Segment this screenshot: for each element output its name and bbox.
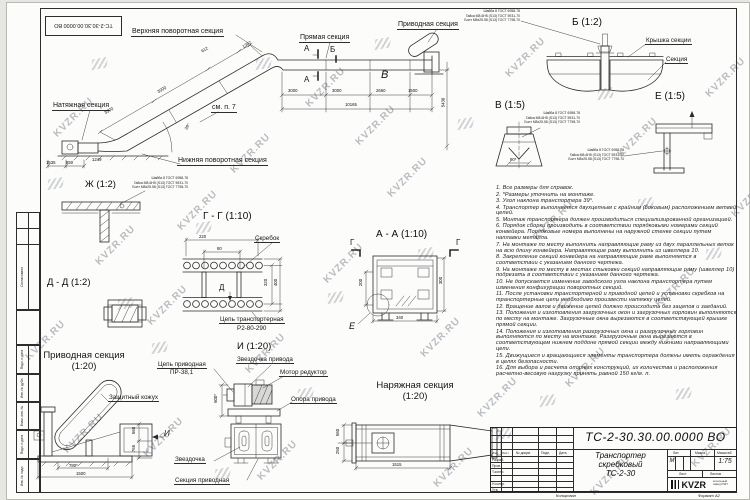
frame-label-agreed: Согласовано: [17, 244, 28, 310]
kvzr-logo-icon: [671, 480, 679, 489]
fastener-callout-b: Шайба 8 ГОСТ 6958-78 Гайка М8-6Н5 (S13) …: [446, 9, 520, 23]
note-item: 16. Для выбора и расчета опорных констру…: [496, 366, 738, 378]
label-sprocket: Звездочка: [174, 456, 206, 464]
dim-v-90: 90*: [510, 157, 516, 162]
tb-scale-value: 1:75: [714, 458, 736, 465]
frame-strip-divider: [28, 345, 29, 374]
dim-gg-80: 80: [217, 246, 222, 251]
view-v-linework: [496, 122, 542, 170]
tb-row-tkontr: Т.контр.: [492, 470, 504, 474]
dim-aa-340: 340: [396, 315, 403, 320]
label-tension-section: Натяжная секция: [52, 102, 110, 111]
tb-col-data: Дата: [559, 451, 567, 455]
fastener-line: Болт М8х25.58 (S13) ГОСТ 7798-70: [514, 120, 580, 125]
dim-total-10165: 10165: [345, 102, 357, 107]
dim-top-3000-2: 3000: [332, 88, 342, 93]
dim-tension-250: 250: [335, 447, 340, 454]
tb-line: [491, 435, 573, 436]
dim-aa-300: 300: [438, 277, 443, 284]
note-item: 14. Положения и изготовления разгрузочны…: [496, 330, 738, 354]
view-zh-title: Ж (1:2): [85, 179, 116, 190]
corner-stamp-text: ТС-2-30.30.00.0000 ВО: [46, 17, 121, 35]
frame-strip-divider: [28, 430, 29, 459]
label-motor-reducer: Мотор редуктор: [279, 369, 328, 377]
frame-label-podp-data-1: Подп. и дата: [17, 345, 28, 374]
tb-line: [491, 462, 573, 463]
dim-drive-780: 780*: [69, 463, 78, 468]
tb-mass-header: Масса: [695, 451, 705, 455]
view-gg-title: Г - Г (1:10): [203, 211, 252, 222]
fastener-line: Болт М8х25.58 (S13) ГОСТ 7798-70: [446, 18, 520, 23]
view-aa-linework: [352, 250, 458, 324]
view-dd-linework: [104, 300, 146, 327]
view-aa-title: А - А (1:10): [376, 229, 427, 240]
label-section-cover: Крышка секции: [645, 37, 692, 45]
view-tension-linework: [338, 423, 501, 470]
label-drive-chain-type: ПР-38,1: [169, 369, 194, 376]
frame-strip-empty-box: [16, 310, 40, 345]
section-mark-a-bottom: А: [304, 75, 309, 84]
view-b-linework: [521, 21, 666, 91]
note-item: 4. Транспортер выполняется двухцепным с …: [496, 206, 738, 218]
tb-divider: [683, 456, 684, 470]
dim-drive-765: 765: [131, 445, 136, 452]
dim-height-5430: 5430: [440, 98, 445, 108]
dim-top-3000-1: 3000: [288, 88, 298, 93]
tb-line: [491, 475, 573, 476]
dim-1535: 1535: [46, 160, 56, 165]
view-zh-linework: [62, 191, 145, 242]
dim-1249: 1249: [92, 157, 102, 162]
tb-doc-number: ТС-2-30.30.00.0000 ВО: [574, 430, 737, 444]
tb-scale-header: Масштаб: [717, 451, 732, 455]
label-drive-sprocket: Звездочка привода: [236, 356, 294, 364]
detail-mark-v: В: [381, 71, 388, 80]
tb-row-nkontr: Н.контр.: [492, 482, 505, 486]
dim-2660: 2660: [376, 88, 386, 93]
fastener-callout-v: Шайба 8 ГОСТ 6958-78 Гайка М8-6Н5 (S13) …: [514, 111, 580, 125]
fastener-callout-zh: Шайба 8 ГОСТ 6958-78 Гайка М8-6Н5 (S13) …: [124, 176, 188, 190]
dim-aa-200: 200: [358, 279, 363, 286]
frame-label-inv-podl: Инв. № подл.: [17, 459, 28, 493]
tb-line: [491, 487, 573, 488]
tb-row-prov: Пров.: [492, 464, 501, 468]
fastener-callout-e: Шайба 8 ГОСТ 6958-78 Гайка М8-6Н5 (S13) …: [544, 148, 624, 162]
tb-col-podp: Подп.: [541, 451, 550, 455]
tb-col-izm: Изм.: [492, 451, 499, 455]
label-see-note-7: см. п. 7: [211, 104, 237, 113]
title-block: ТС-2-30.30.00.0000 ВО Транспортер скребк…: [490, 427, 737, 492]
dim-tension-1515: 1515: [392, 462, 402, 467]
note-item: 15. Движущиеся и вращающиеся элементы тр…: [496, 354, 738, 366]
view-tension-title: Наряжная секция (1:20): [358, 380, 472, 402]
tb-col-doc: № докум.: [516, 451, 531, 455]
view-drive-title-line1: Приводная секция: [32, 350, 136, 361]
tb-line: [667, 477, 736, 478]
note-item: 13. Положения и изготовления загрузочных…: [496, 311, 738, 329]
tb-name-line2: скребковый: [574, 460, 667, 469]
view-tension-title-line1: Наряжная секция: [358, 380, 472, 391]
label-drive-support: Опора привода: [290, 396, 337, 404]
view-b-title: Б (1:2): [572, 17, 602, 28]
label-protective-casing: Защитный кожух: [108, 394, 159, 402]
frame-label-vzam-inv: Взам. инв. №: [17, 402, 28, 430]
tb-logo-sub: котельный завод РЭП: [713, 480, 728, 487]
dim-drive-560: 560: [131, 427, 136, 434]
fastener-line: Болт М8х25.58 (S13) ГОСТ 7798-70: [124, 185, 188, 190]
note-item: 11. После установки транспортерной и при…: [496, 292, 738, 304]
frame-label-inv-dubl: Инв. № дубл.: [17, 374, 28, 402]
detail-mark-b: Б: [330, 45, 335, 54]
note-item: 9. На монтаже по месту в местах стыковки…: [496, 268, 738, 280]
view-drive-linework: [34, 375, 163, 479]
view-e-title: Е (1:5): [655, 91, 685, 102]
corner-stamp-box: ТС-2-30.30.00.0000 ВО: [45, 16, 122, 36]
tb-logo-sub2: завод РЭП: [713, 483, 728, 486]
tb-line: [573, 449, 736, 450]
note-item: 10. Не допускается изменение заводского …: [496, 280, 738, 292]
tb-lit-value: М: [668, 458, 676, 464]
label-drive-section-callout: Секция приводная: [174, 477, 230, 485]
tb-copied-label: Копировал: [556, 493, 576, 498]
view-mark-d: Д: [219, 283, 224, 292]
tb-row-razrab: Разраб.: [492, 458, 504, 462]
tb-format-label: Формат А2: [698, 493, 720, 498]
tb-line: [667, 456, 736, 457]
frame-strip-divider: [28, 374, 29, 402]
view-i-linework: [214, 365, 292, 480]
tb-lit-header: Лит.: [673, 451, 679, 455]
frame-strip-divider: [28, 212, 29, 310]
label-upper-turn-section: Верхняя поворотная секция: [131, 28, 224, 37]
dim-gg-400: 400: [273, 279, 278, 286]
label-scraper: Скребок: [254, 235, 280, 243]
tb-line: [491, 449, 573, 450]
tb-sheet-label: Лист: [679, 472, 686, 476]
view-drive-title: Приводная секция (1:20): [32, 350, 136, 372]
tb-line: [491, 442, 573, 443]
frame-strip-divider: [28, 402, 29, 430]
general-view-linework: [46, 29, 449, 168]
dim-tension-560: 560: [335, 429, 340, 436]
frame-label-podp-data-2: Подп. и дата: [17, 430, 28, 459]
tb-divider: [690, 449, 691, 470]
label-section: Секция: [665, 56, 688, 64]
note-item: 6. Порядок сборки производить в соответс…: [496, 224, 738, 242]
note-item: 7. На монтаже по месту выполнить направл…: [496, 243, 738, 255]
label-lower-turn-section: Нижняя поворотная секция: [177, 157, 268, 166]
view-dd-title: Д - Д (1:2): [47, 277, 90, 288]
dim-850: 850: [66, 160, 73, 165]
view-drive-title-scale: (1:20): [32, 361, 136, 372]
tb-name-line1: Транспортер: [574, 451, 667, 460]
tb-part-name: Транспортер скребковый ТС-2-30: [574, 451, 667, 478]
fastener-line: Болт М8х25.58 (S13) ГОСТ 7798-70: [544, 157, 624, 162]
tb-sheets-label: Листов: [710, 472, 721, 476]
tb-logo: KVZR: [671, 480, 706, 490]
view-tension-title-scale: (1:20): [358, 391, 472, 402]
frame-strip-divider: [28, 459, 29, 493]
view-i-title: И (1:20): [237, 341, 271, 352]
tb-divider: [702, 470, 703, 477]
note-item: 8. Закрепление секций конвейера на напра…: [496, 255, 738, 267]
section-mark-g-right: Г: [456, 238, 460, 247]
tb-name-line3: ТС-2-30: [574, 469, 667, 478]
view-e-linework: [624, 111, 712, 173]
view-v-title: В (1:5): [495, 100, 525, 111]
dim-1500: 1500: [408, 88, 418, 93]
kvzr-logo-text: KVZR: [682, 480, 707, 490]
view-mark-i: И: [164, 429, 170, 438]
label-conveyor-chain: Цепь транспортерная: [219, 316, 285, 324]
label-conveyor-chain-type: Р2-80-290: [236, 325, 267, 332]
drawing-sheet: KVZR.RUKVZR.RUKVZR.RUKVZR.RUKVZR.RUKVZR.…: [0, 0, 750, 500]
detail-mark-e: Е: [349, 322, 355, 331]
section-mark-g-left: Г: [350, 238, 354, 247]
label-straight-section: Прямая секция: [299, 34, 350, 43]
dim-gg-220: 220: [199, 234, 206, 239]
tb-row-utv: Утв.: [492, 488, 498, 492]
dim-drive-1500: 1500: [76, 471, 86, 476]
dim-i-600: 600*: [213, 394, 218, 403]
label-drive-chain: Цепь приводная: [157, 361, 207, 369]
section-mark-a-top: А: [304, 44, 309, 53]
dim-gg-320: 320: [263, 279, 268, 286]
tb-col-list: Лист: [502, 451, 509, 455]
notes-list: 1. Все размеры для справок.2. *Размеры у…: [496, 186, 738, 379]
frame-strip-line: [16, 228, 40, 229]
